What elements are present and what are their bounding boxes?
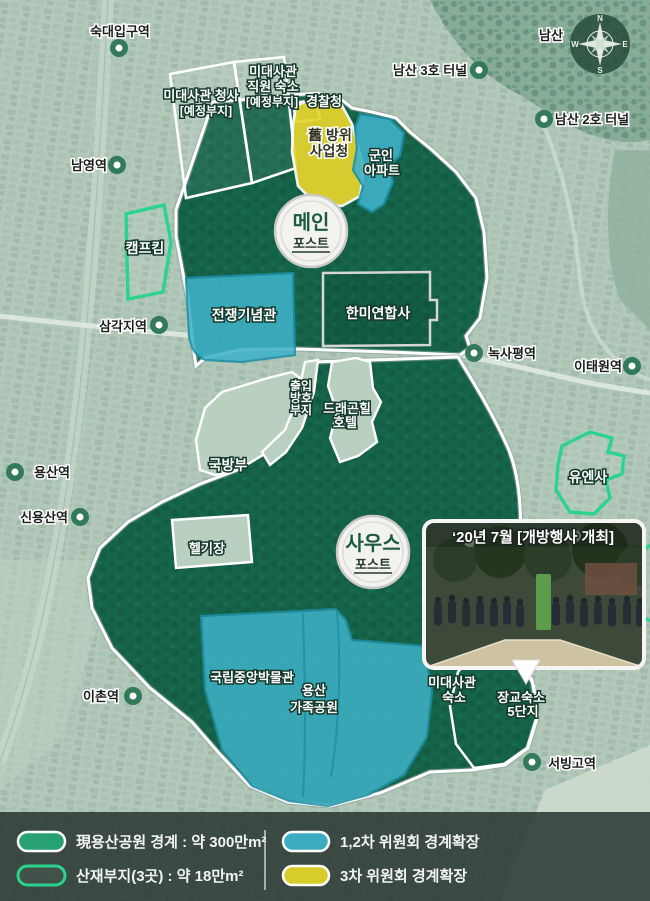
old-dapa-label: 舊 방위 <box>308 127 352 143</box>
embassy-office-label: 미대사관 청사 <box>163 88 238 103</box>
legend-label-committee-3: 3차 위원회 경계확장 <box>340 867 467 885</box>
photo-caption: ‘20년 7월 [개방행사 개최] <box>452 528 614 546</box>
military-apt-label: 군인 <box>369 148 393 163</box>
access-site-label3: 부지 <box>290 402 312 417</box>
south-post-badge: 사우스 포스트 <box>337 516 409 588</box>
station-label: 이촌역 <box>83 689 119 704</box>
station-label: 숙대입구역 <box>90 24 150 39</box>
tunnel3-marker: 남산 3호 터널 <box>393 61 488 79</box>
compass-n: N <box>597 14 603 23</box>
officer-housing-label: 장교숙소 <box>497 690 545 705</box>
tunnel2-marker: 남산 2호 터널 <box>535 110 629 128</box>
legend-label-park-boundary: 現용산공원 경계 : 약 300만m² <box>76 833 266 851</box>
station-samgakji: 삼각지역 <box>99 316 168 334</box>
legend-swatch-committee-3 <box>283 866 329 885</box>
main-post-name: 메인 <box>293 211 330 234</box>
station-label: 신용산역 <box>20 510 68 525</box>
station-yongsan: 용산역 <box>6 463 70 481</box>
police-label: 경찰청 <box>306 94 342 109</box>
station-namyeong: 남영역 <box>71 156 126 174</box>
military-apt-label2: 아파트 <box>364 163 400 178</box>
legend-swatch-scattered-sites <box>18 866 65 885</box>
family-park-label: 용산 <box>302 683 326 698</box>
museum-label: 국립중앙박물관 <box>210 670 294 685</box>
station-sinyongsan: 신용산역 <box>20 508 89 526</box>
legend-swatch-park-boundary <box>18 832 65 851</box>
dragon-hill-label: 드래곤힐 <box>323 401 371 416</box>
heliport-label: 헬기장 <box>189 541 225 556</box>
station-ichon: 이촌역 <box>83 687 142 705</box>
embassy-staff-label3: [예정부지] <box>246 94 298 109</box>
station-label: 삼각지역 <box>99 319 147 334</box>
main-post-badge: 메인 포스트 <box>275 195 347 267</box>
photo-inset: ‘20년 7월 [개방행사 개최] <box>424 521 650 684</box>
station-label: 이태원역 <box>574 359 622 374</box>
main-post-sub: 포스트 <box>293 236 329 251</box>
yongsan-park-map: 숙대입구역 남영역 삼각지역 용산역 신용산역 이촌역 녹사평역 이태원역 서빙… <box>0 0 650 901</box>
camp-kim-label: 캠프킴 <box>126 240 165 256</box>
south-post-sub: 포스트 <box>355 557 391 572</box>
legend-label-committee-1-2: 1,2차 위원회 경계확장 <box>340 833 480 851</box>
embassy-housing-label: 미대사관 <box>428 675 476 690</box>
mnd-label: 국방부 <box>209 457 248 473</box>
embassy-housing-label2: 숙소 <box>442 690 466 705</box>
legend-swatch-committee-1-2 <box>283 832 329 851</box>
dragon-hill-label2: 호텔 <box>333 415 357 430</box>
un-command-label: 유엔사 <box>569 469 608 485</box>
namsan-label: 남산 <box>539 28 563 43</box>
station-seobinggo: 서빙고역 <box>523 753 596 771</box>
compass-e: E <box>622 40 628 49</box>
legend-label-scattered-sites: 산재부지(3곳) : 약 18만m² <box>76 867 243 885</box>
south-post-name: 사우스 <box>345 532 400 555</box>
cfc-label: 한미연합사 <box>346 305 411 321</box>
legend: 現용산공원 경계 : 약 300만m² 산재부지(3곳) : 약 18만m² 1… <box>0 812 650 901</box>
tunnel3-label: 남산 3호 터널 <box>393 63 467 78</box>
family-park-label2: 가족공원 <box>290 700 338 715</box>
war-memorial-label: 전쟁기념관 <box>212 307 277 323</box>
station-noksapyeong: 녹사평역 <box>465 344 536 362</box>
compass-w: W <box>571 40 579 49</box>
officer-housing-label2: 5단지 <box>507 704 538 719</box>
station-itaewon: 이태원역 <box>574 357 641 375</box>
embassy-staff-label: 미대사관 <box>249 64 297 79</box>
tunnel2-label: 남산 2호 터널 <box>555 112 629 127</box>
station-label: 녹사평역 <box>488 346 536 361</box>
embassy-office-label2: [예정부지] <box>180 103 232 118</box>
station-label: 서빙고역 <box>548 756 596 771</box>
map-canvas: 숙대입구역 남영역 삼각지역 용산역 신용산역 이촌역 녹사평역 이태원역 서빙… <box>0 0 650 901</box>
station-label: 용산역 <box>34 465 70 480</box>
compass-s: S <box>597 66 603 75</box>
station-label: 남영역 <box>71 158 107 173</box>
embassy-staff-label2: 직원 숙소 <box>247 79 298 94</box>
old-dapa-label2: 사업청 <box>310 143 349 159</box>
